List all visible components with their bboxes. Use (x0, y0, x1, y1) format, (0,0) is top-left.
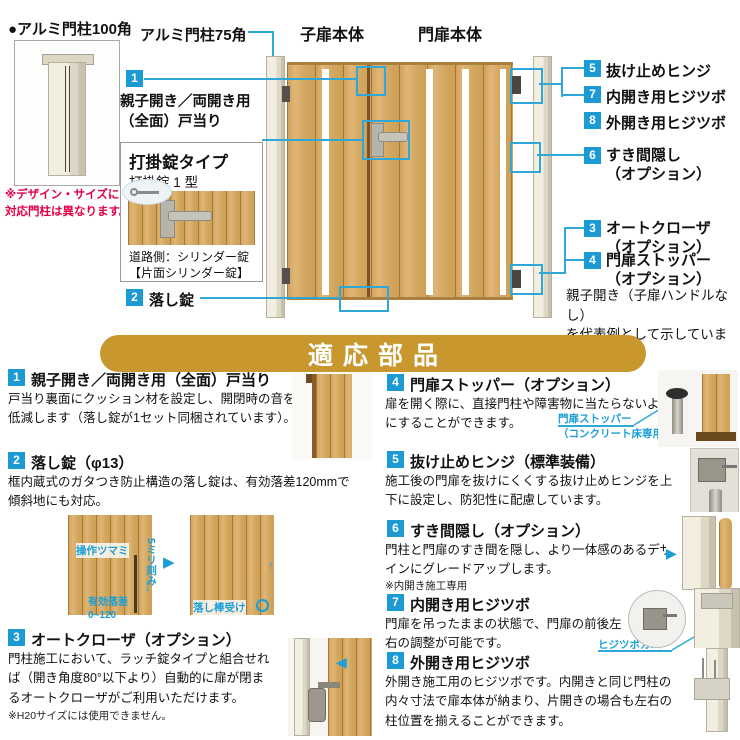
post100-photo (14, 40, 120, 186)
part-8-desc: 外開き施工用のヒジツボです。内開きと同じ門柱の内々寸法で扉本体が納まり、片開きの… (385, 673, 681, 731)
callout-2-line (200, 297, 339, 299)
key-icon (122, 179, 172, 205)
right-bracket-line (539, 272, 566, 274)
pivot-cover-part (701, 593, 733, 609)
drop-rod (134, 555, 137, 613)
part-1-badge: 1 (8, 369, 25, 386)
part-5-title: 抜け止めヒンジ（標準装備） (410, 451, 605, 472)
right-bracket-line (539, 83, 561, 85)
callout-6-label: すき間隠し （オプション） (606, 147, 711, 185)
pitch-label: 5ミリ刻み (144, 538, 159, 586)
part-3-photo: ◀ (288, 638, 372, 736)
pivot-cover-underline (598, 650, 672, 652)
right-leader-line (537, 154, 584, 156)
part-2-title: 落し錠（φ13） (31, 452, 133, 473)
callout-1-badge: 1 (126, 70, 143, 87)
part-3-badge: 3 (8, 629, 25, 646)
post75-leader-line (272, 31, 274, 58)
callout-2-label: 落し錠 (149, 289, 194, 310)
post75-leader-line (248, 31, 272, 33)
door-seam (367, 65, 370, 297)
lock-leader-line (262, 139, 362, 141)
highlight-box-hinge-top (510, 68, 543, 104)
gap-arrow-icon: ▶ (666, 545, 677, 562)
highlight-box-droplock (339, 286, 389, 312)
highlight-box-gap (510, 142, 541, 173)
outswing-pin (702, 658, 704, 678)
callout-3-badge: 3 (584, 220, 601, 237)
catalog-page: ●アルミ門柱100角 ※デザイン・サイズによって 対応門柱は異なります。 アルミ… (0, 0, 740, 740)
gate-slit (462, 69, 469, 295)
lock-handle-photo (128, 191, 255, 245)
hinge-pin (722, 465, 737, 468)
section-banner: 適応部品 (100, 335, 646, 372)
part-7-badge: 7 (387, 594, 404, 611)
callout-8-label: 外開き用ヒジツボ (606, 112, 726, 133)
main-door-label: 門扉本体 (418, 21, 482, 45)
hinge-bracket (698, 458, 726, 482)
part-8-badge: 8 (387, 652, 404, 669)
gate-slit (500, 69, 506, 295)
callout-6-badge: 6 (584, 147, 601, 164)
lock-type-title: 打掛錠タイプ (129, 149, 228, 173)
child-door-label: 子扉本体 (300, 21, 364, 45)
right-bracket-line (561, 67, 584, 69)
part-7-desc: 門扉を吊ったままの状態で、門扉の前後左右の調整が可能です。 (385, 615, 623, 654)
receiver-circle-icon (256, 599, 269, 612)
callout-4-label: 門扉ストッパー （オプション） (606, 252, 711, 290)
hinge-icon (282, 268, 290, 284)
doorstop-edge (316, 374, 352, 458)
callout-1-label: 親子開き／両開き用 （全面）戸当り (120, 92, 251, 133)
part-6-note: ※内開き施工専用 (385, 578, 467, 593)
callout-5-badge: 5 (584, 60, 601, 77)
receiver-label: 落し棒受け (193, 600, 246, 615)
outswing-hinge-block (694, 678, 730, 700)
right-bracket-line (564, 227, 566, 274)
pivot-pin (663, 614, 677, 617)
knob-label: 操作ツマミ (76, 543, 129, 558)
part-6-badge: 6 (387, 520, 404, 537)
drop-arrow-icon: ↓ (145, 580, 151, 594)
close-arrow-icon: ◀ (336, 654, 347, 671)
stopper-cap (666, 388, 688, 399)
lock-handle-lever (168, 211, 212, 221)
part-5-desc: 施工後の門扉を抜けにくくする抜け止めヒンジを上下に設定し、防犯性に配慮しています… (385, 472, 677, 511)
highlight-box-doorstop (356, 66, 386, 96)
stopper-cylinder (672, 396, 683, 434)
pivot-block (643, 608, 667, 630)
post100-body (48, 62, 86, 176)
part-8-title: 外開き用ヒジツボ (410, 652, 530, 673)
part-6-desc: 門柱と門扉のすき間を隠し、より一体感のあるデザインにグレードアップします。 (385, 541, 677, 580)
callout-5-label: 抜け止めヒンジ (606, 60, 711, 81)
gap-post (682, 516, 716, 590)
post100-seam (65, 66, 66, 172)
part-4-title: 門扉ストッパー（オプション） (410, 374, 620, 395)
part-1-desc: 戸当り裏面にクッション材を設定し、開閉時の音を低減します（落し錠が1セット同梱さ… (8, 390, 296, 429)
part-2-badge: 2 (8, 452, 25, 469)
highlight-box-handle (362, 120, 410, 160)
part-4-photo (658, 370, 738, 447)
post100-label: ●アルミ門柱100角 (8, 18, 132, 39)
gate-body (287, 62, 513, 300)
callout-7-badge: 7 (584, 86, 601, 103)
gate-slit (426, 69, 433, 295)
stopper-door-base (696, 432, 736, 441)
closer-post (294, 638, 310, 736)
stopper-door (702, 374, 730, 434)
callout-4-badge: 4 (584, 252, 601, 269)
part-7-title: 内開き用ヒジツボ (410, 594, 530, 615)
right-bracket-line (564, 259, 584, 261)
part-6-title: すき間隠し（オプション） (410, 520, 590, 541)
right-bracket-line (561, 94, 584, 96)
gap-hider-bar (719, 518, 732, 590)
part-3-desc: 門柱施工において、ラッチ錠タイプと組合せれば（開き角度80°以下より）自動的に扉… (8, 650, 276, 708)
part-7-photo-inset (628, 590, 686, 648)
part-1-photo (292, 372, 372, 460)
up-arrow-icon: ↑ (268, 558, 274, 572)
part-3-note: ※H20サイズには使用できません。 (8, 708, 172, 723)
next-arrow-icon: ▶ (163, 553, 175, 571)
part-4-badge: 4 (387, 374, 404, 391)
lock-type-box: 打掛錠タイプ 打掛錠 1 型 道路側：シリンダー錠 【片面シリンダー錠】 (120, 142, 263, 282)
part-1-title: 親子開き／両開き用（全面）戸当り (31, 369, 271, 390)
callout-2-badge: 2 (126, 289, 143, 306)
lock-roadside-note: 道路側：シリンダー錠 【片面シリンダー錠】 (129, 249, 249, 281)
outswing-pin (714, 660, 716, 678)
drop-range-label: 有効落差 0~120 (88, 596, 128, 622)
gate-slit (322, 69, 329, 295)
callout-7-label: 内開き用ヒジツボ (606, 86, 726, 107)
part-3-title: オートクローザ（オプション） (31, 629, 241, 650)
callout-1-line (144, 78, 356, 80)
key-shaft (137, 191, 159, 194)
highlight-box-hinge-bottom (510, 264, 543, 295)
closer-body (308, 688, 326, 722)
part-8-photo (690, 648, 740, 732)
doorstop-strip (312, 374, 316, 458)
section-banner-title: 適応部品 (298, 336, 448, 372)
part-2-illustration: 操作ツマミ 5ミリ刻み ↓ 有効落差 0~120 ▶ 落し棒受け ↑ (60, 510, 290, 630)
callout-8-badge: 8 (584, 112, 601, 129)
right-bracket-line (564, 227, 584, 229)
part-5-badge: 5 (387, 451, 404, 468)
part-2-desc: 框内蔵式のガタつき防止構造の落し錠は、有効落差120mmで傾斜地にも対応。 (8, 473, 360, 512)
post100-seam (69, 66, 70, 172)
part-6-photo: ▶ (666, 512, 740, 592)
hinge-icon (282, 86, 290, 102)
right-bracket-line (561, 67, 563, 97)
post75-label: アルミ門柱75角 (140, 24, 247, 45)
stopper-underline (558, 425, 634, 427)
